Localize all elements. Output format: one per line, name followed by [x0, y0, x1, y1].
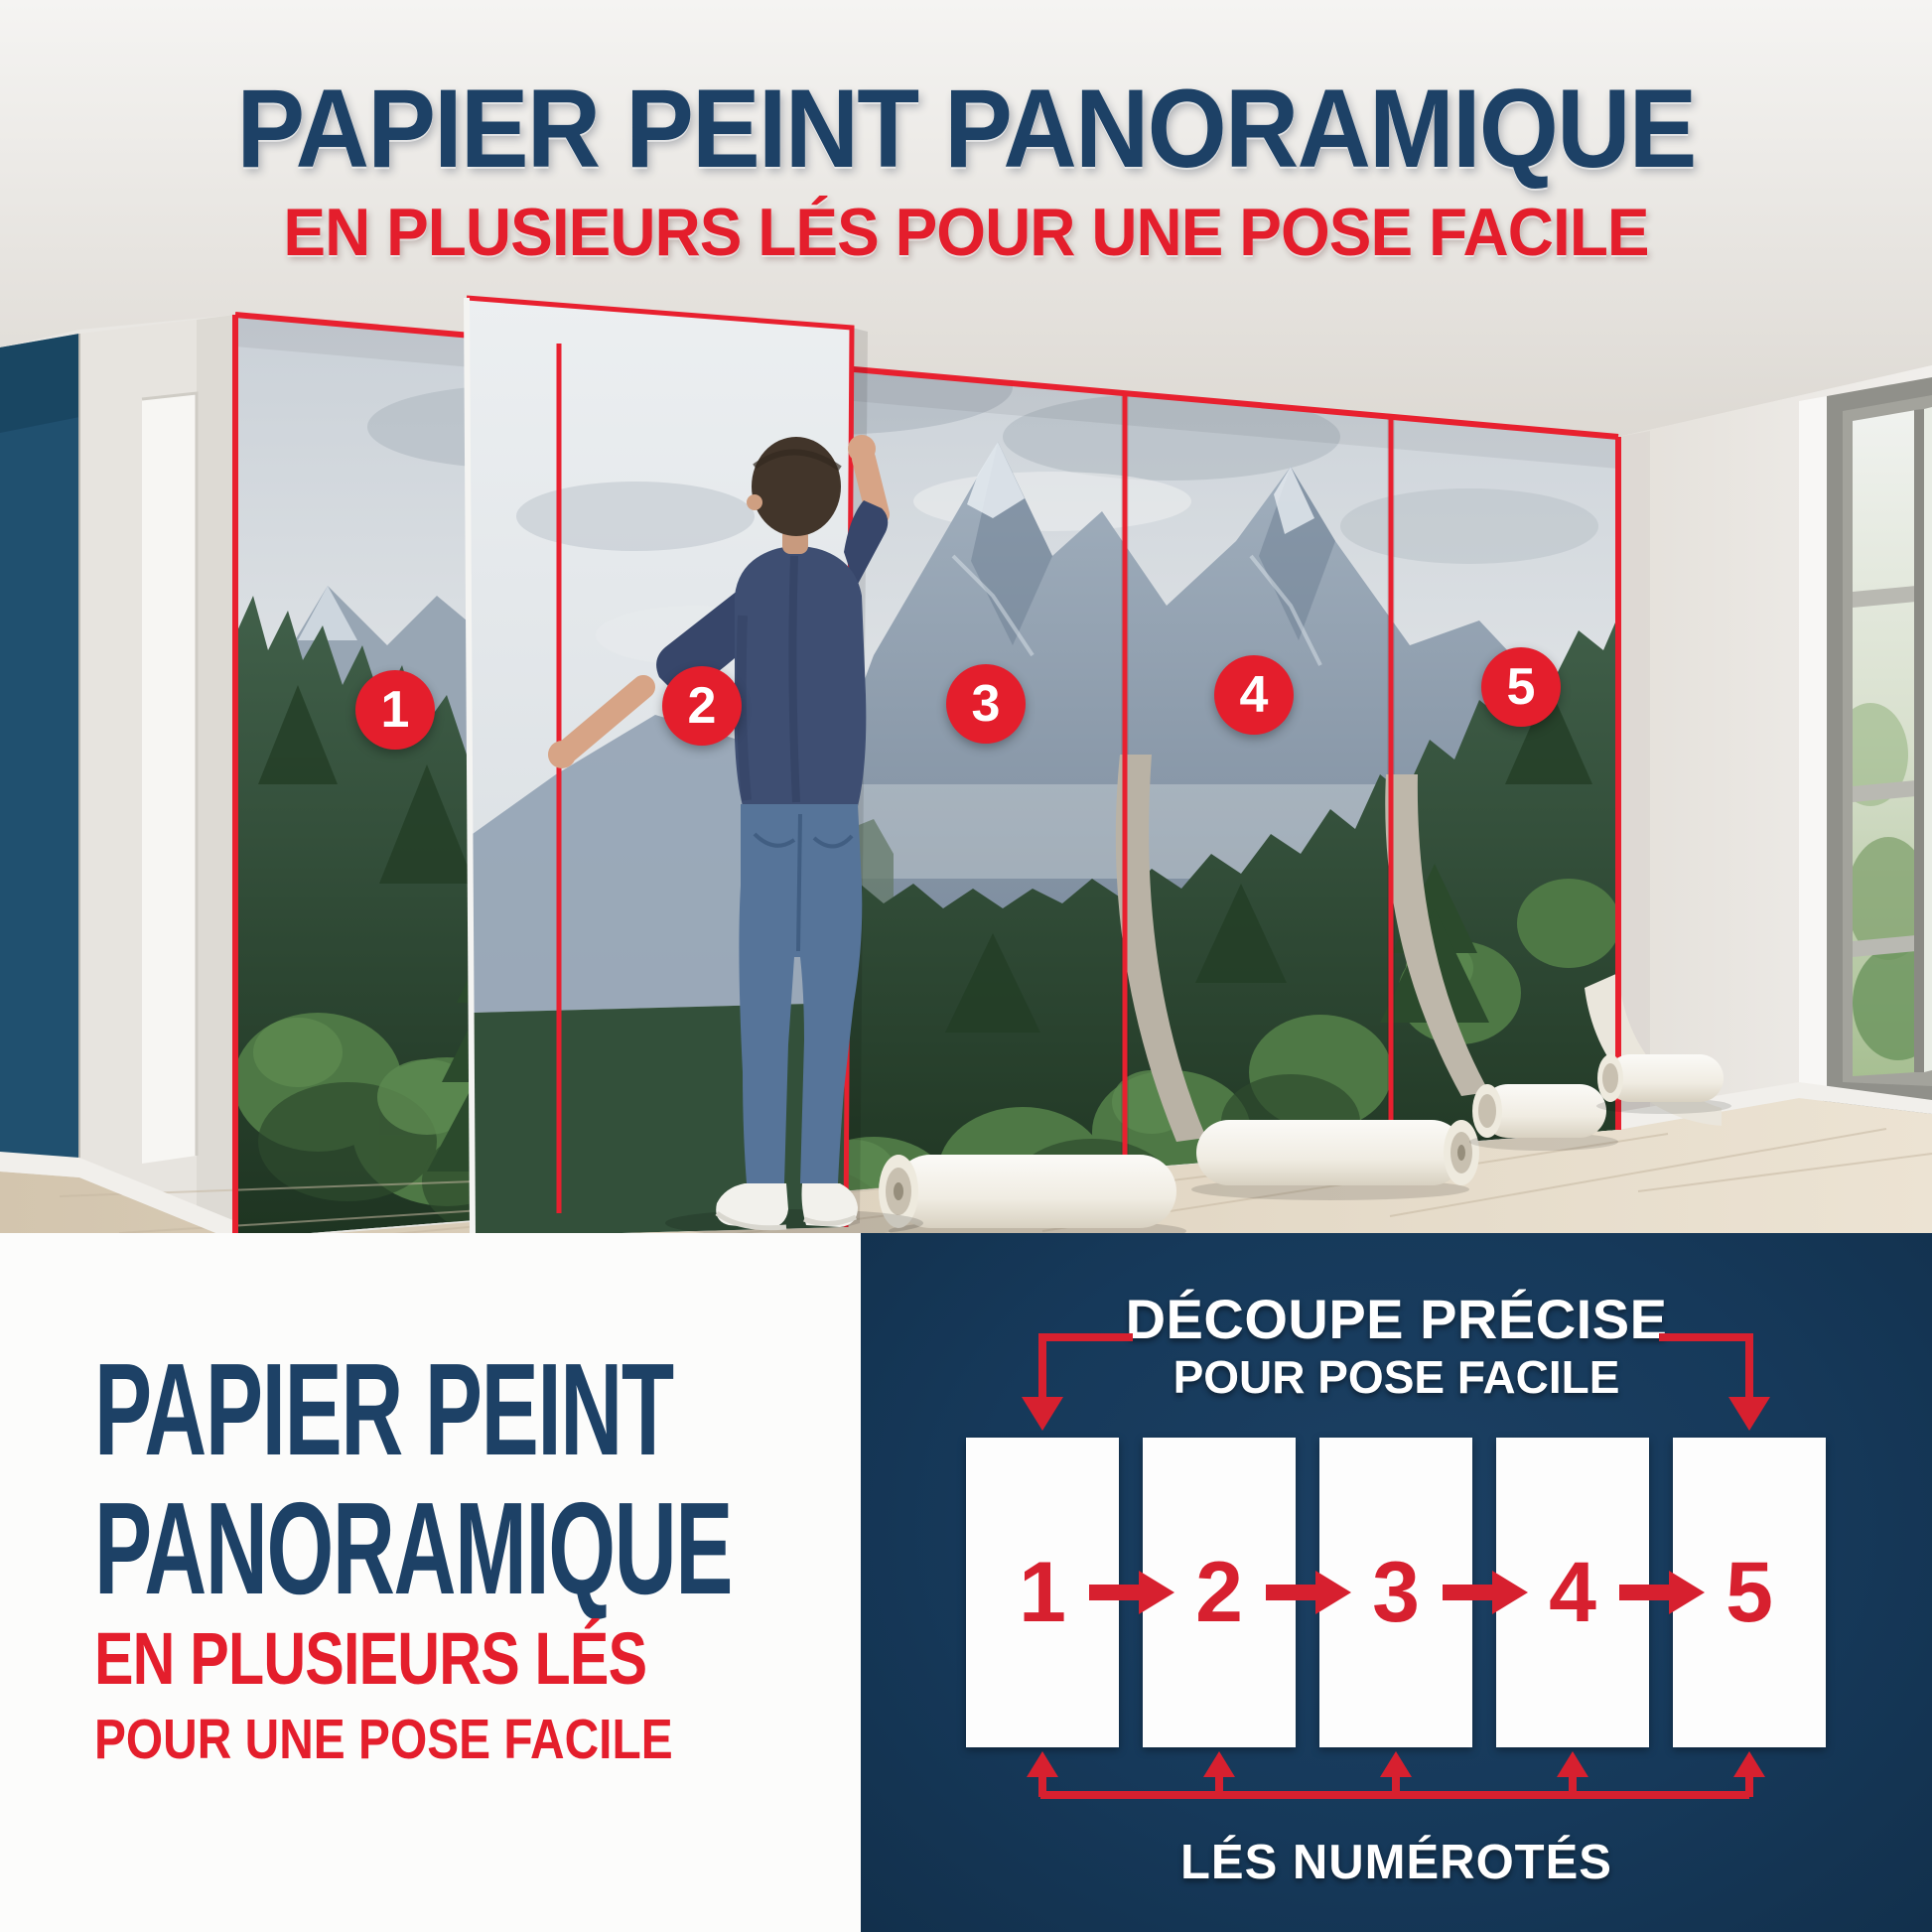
diagram-caption: LÉS NUMÉROTÉS [861, 1835, 1932, 1890]
diagram-strip-number: 1 [1019, 1544, 1066, 1642]
bottom-title-line2: PANORAMIQUE [94, 1483, 732, 1614]
bottom-left-panel: PAPIER PEINT PANORAMIQUE EN PLUSIEURS LÉ… [0, 1233, 861, 1932]
strip-number-badge: 3 [946, 664, 1026, 744]
page-title: PAPIER PEINT PANORAMIQUE [77, 73, 1855, 185]
cutting-diagram: DÉCOUPE PRÉCISE POUR POSE FACILE 1 2 3 4… [861, 1233, 1932, 1932]
strip-number-badge: 4 [1214, 655, 1294, 735]
diagram-strip-number: 5 [1725, 1544, 1773, 1642]
accent-wall [0, 334, 79, 1172]
bottom-title-line1: PAPIER PEINT [94, 1344, 673, 1475]
mural-wall [233, 298, 1620, 1233]
doorway-wall [79, 315, 235, 1233]
window [1799, 377, 1932, 1116]
diagram-strip-number: 2 [1195, 1544, 1243, 1642]
header: PAPIER PEINT PANORAMIQUE EN PLUSIEURS LÉ… [0, 73, 1932, 266]
diagram-subtitle: POUR POSE FACILE [861, 1350, 1932, 1404]
strip-number-badge: 5 [1481, 647, 1561, 727]
page-subtitle: EN PLUSIEURS LÉS POUR UNE POSE FACILE [58, 199, 1873, 266]
bottom-subtitle-line2: POUR UNE POSE FACILE [94, 1712, 673, 1768]
strip-number-badge: 2 [662, 666, 742, 746]
diagram-strip-number: 4 [1549, 1544, 1596, 1642]
diagram-title: DÉCOUPE PRÉCISE [861, 1287, 1932, 1351]
room-photo: PAPIER PEINT PANORAMIQUE EN PLUSIEURS LÉ… [0, 0, 1932, 1233]
strip-number-badge: 1 [355, 670, 435, 750]
bottom-subtitle-line1: EN PLUSIEURS LÉS [94, 1622, 646, 1696]
doorway [142, 393, 197, 1164]
diagram-strip-number: 3 [1372, 1544, 1420, 1642]
